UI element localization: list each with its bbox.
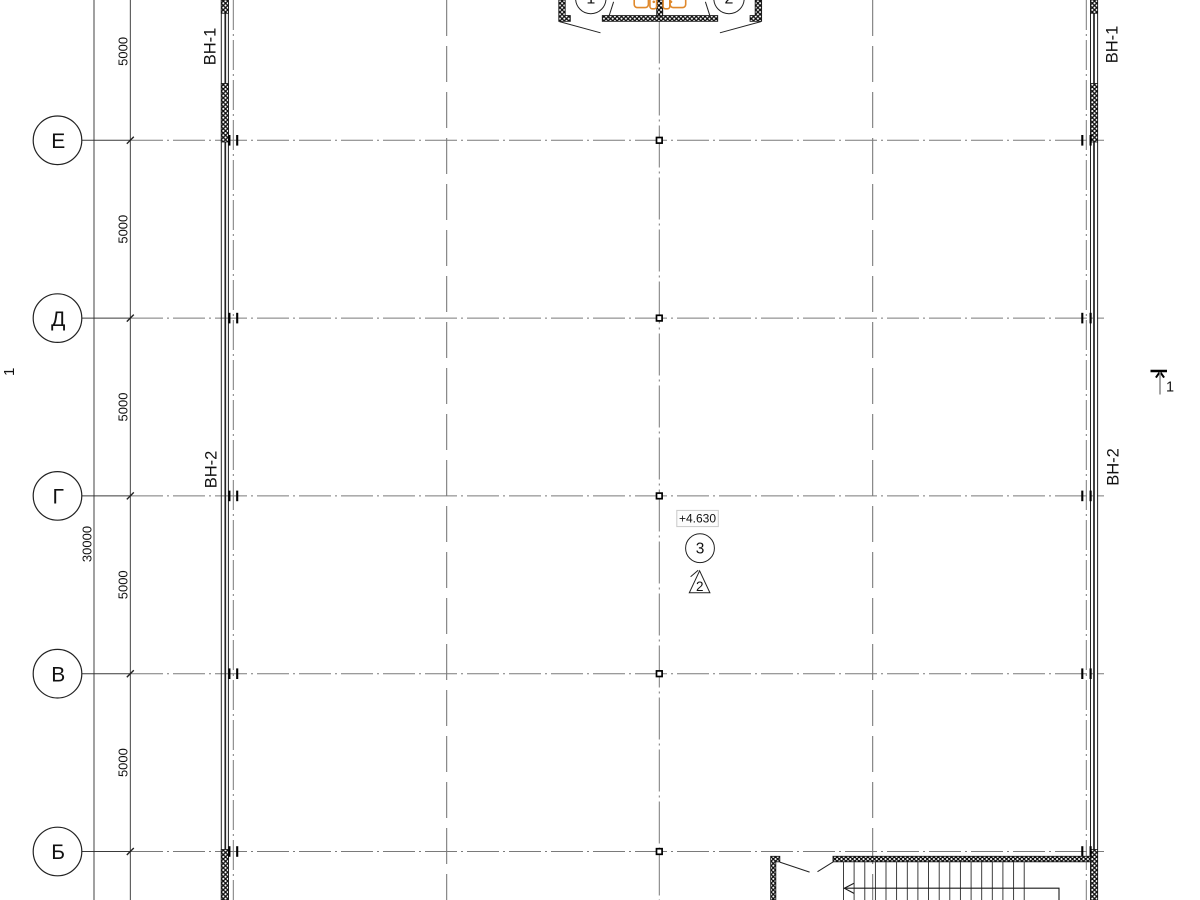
svg-text:+4.630: +4.630 (679, 512, 716, 526)
svg-text:Е: Е (51, 130, 65, 153)
svg-text:Д: Д (51, 308, 65, 331)
svg-text:1: 1 (1, 368, 18, 376)
svg-text:5000: 5000 (115, 37, 130, 66)
svg-text:ВН-1: ВН-1 (1104, 26, 1122, 64)
svg-text:ВН-1: ВН-1 (202, 28, 220, 66)
svg-text:30000: 30000 (80, 526, 95, 562)
svg-text:5000: 5000 (115, 748, 130, 777)
svg-text:ВН-2: ВН-2 (1105, 448, 1123, 486)
svg-text:Г: Г (53, 486, 64, 509)
svg-text:2: 2 (696, 579, 704, 594)
svg-text:ВН-2: ВН-2 (203, 451, 221, 489)
svg-text:1: 1 (586, 0, 595, 8)
svg-text:В: В (51, 663, 65, 686)
svg-text:1: 1 (1166, 380, 1174, 396)
svg-text:5000: 5000 (115, 215, 130, 244)
svg-text:5000: 5000 (115, 570, 130, 599)
svg-text:Б: Б (51, 841, 65, 864)
svg-text:2: 2 (725, 0, 734, 8)
svg-text:3: 3 (696, 541, 705, 558)
svg-text:5000: 5000 (115, 393, 130, 422)
